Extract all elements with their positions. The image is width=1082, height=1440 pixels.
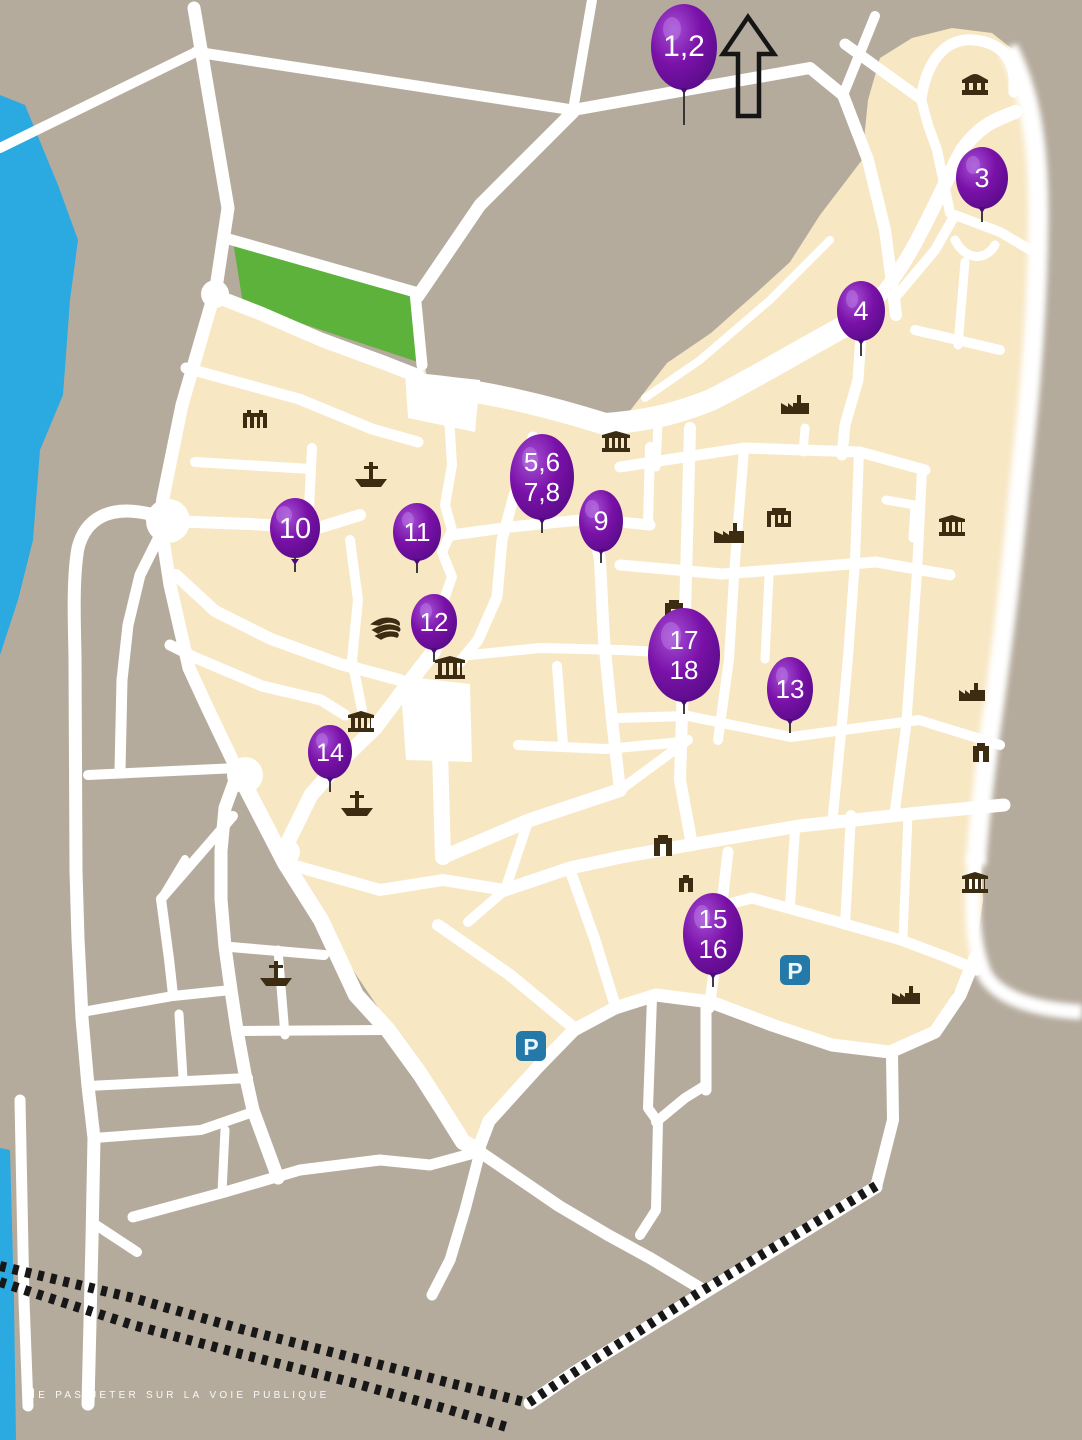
svg-text:3: 3	[974, 163, 989, 193]
svg-text:P: P	[523, 1034, 538, 1060]
svg-text:Ne pas jeter sur la voie publ: Ne pas jeter sur la voie publique	[25, 1385, 329, 1401]
svg-text:9: 9	[593, 506, 608, 536]
svg-text:4: 4	[853, 296, 868, 326]
svg-text:14: 14	[316, 739, 344, 767]
svg-text:17: 17	[670, 625, 699, 655]
svg-text:7,8: 7,8	[524, 477, 560, 507]
svg-text:12: 12	[420, 607, 449, 637]
svg-text:13: 13	[776, 674, 805, 704]
svg-text:10: 10	[279, 513, 311, 545]
svg-text:18: 18	[670, 655, 699, 685]
svg-text:11: 11	[404, 517, 431, 547]
svg-text:P: P	[787, 958, 802, 984]
svg-text:16: 16	[699, 934, 728, 964]
svg-text:1,2: 1,2	[663, 30, 705, 63]
svg-text:15: 15	[699, 904, 728, 934]
svg-text:5,6: 5,6	[524, 447, 560, 477]
